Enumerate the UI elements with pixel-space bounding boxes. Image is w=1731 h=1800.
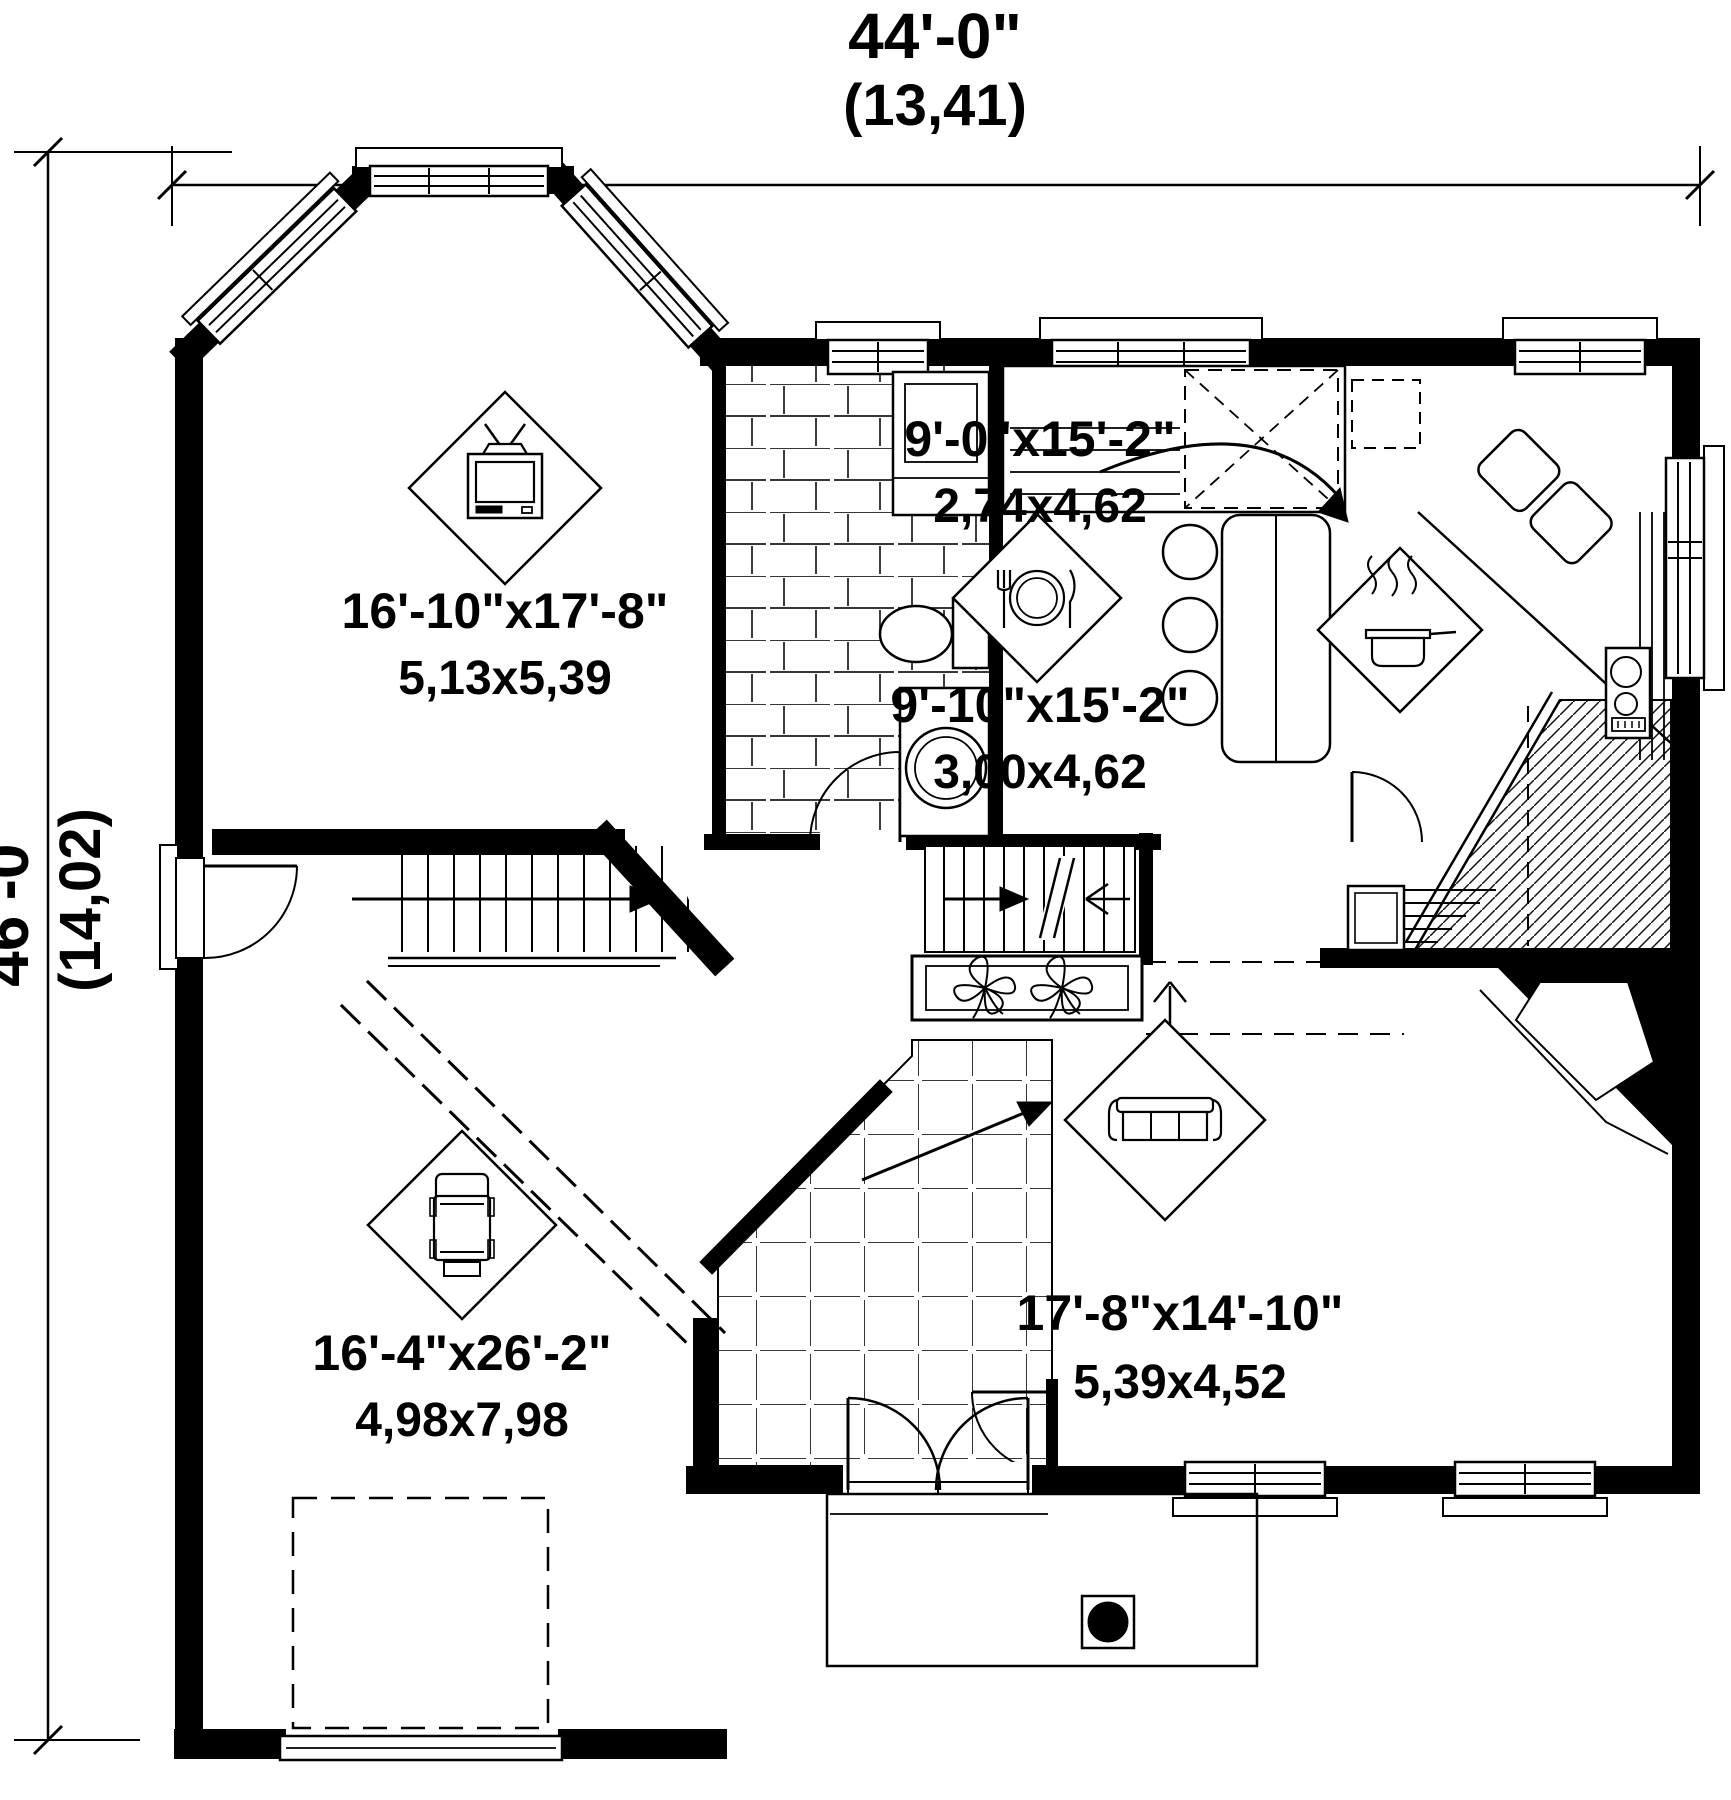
living-dims-imperial: 17'-8"x14'-10": [1017, 1285, 1344, 1341]
family-room-dims-imperial: 16'-10"x17'-8": [342, 583, 669, 639]
corner-sink: [1474, 426, 1615, 567]
tv-icon: [409, 392, 601, 584]
rear-door-swing: [1352, 772, 1422, 842]
frame: [562, 185, 712, 348]
dishwasher-dashed: [1352, 380, 1420, 448]
garage-details: [293, 1498, 548, 1728]
sofa-icon: [1065, 1020, 1265, 1220]
front-door-threshold-l: [848, 1482, 938, 1494]
garage-dims-imperial: 16'-4"x26'-2": [312, 1325, 611, 1381]
family-room-dims-metric: 5,13x5,39: [398, 652, 612, 705]
front-door-threshold-r: [938, 1482, 1028, 1494]
stool-2: [1163, 598, 1217, 652]
porch: [827, 1494, 1257, 1666]
overall-width-imperial: 44'-0": [848, 0, 1022, 72]
right-wall-window: [1666, 458, 1704, 678]
side-door-swing: [205, 866, 297, 958]
overall-height-metric: (14,02): [48, 808, 113, 992]
bay-left-window: [182, 173, 362, 350]
bathroom-window-sill: [816, 322, 940, 340]
bay-right-window: [556, 169, 728, 353]
right-window-sill: [1704, 446, 1724, 690]
rear-closet: [1348, 886, 1404, 950]
kitchen-dims-imperial: 9'-0"x15'-2": [904, 411, 1175, 467]
living-dims-metric: 5,39x4,52: [1073, 1356, 1287, 1409]
bay-top-window: [370, 166, 548, 196]
overall-height-imperial: 46'-0": [0, 813, 42, 987]
porch-slab: [827, 1494, 1257, 1666]
living-window1-sill: [1173, 1498, 1337, 1516]
overall-width-metric: (13,41): [843, 73, 1027, 138]
garage-dims-metric: 4,98x7,98: [355, 1394, 569, 1447]
car-icon: [368, 1131, 556, 1319]
bathroom-door-opening: [820, 832, 906, 852]
stairs-basement: [925, 846, 1135, 952]
living-window2-sill: [1443, 1498, 1607, 1516]
garage-angled-dashed-wall-a: [342, 1006, 700, 1356]
floor-plan-page: 44'-0" (13,41) 46'-0" (14,02): [0, 0, 1731, 1800]
dining-dims-imperial: 9'-10"x15'-2": [890, 677, 1189, 733]
porch-column: [1088, 1602, 1128, 1642]
kitchen-dims-metric: 2,74x4,62: [933, 480, 1147, 533]
side-door-opening: [176, 858, 204, 958]
frame: [198, 188, 357, 343]
kitchen-window1-sill: [1040, 318, 1262, 340]
dining-dims-metric: 3,00x4,62: [933, 746, 1147, 799]
toilet-bowl: [880, 606, 952, 662]
floor-plan-drawing: 44'-0" (13,41) 46'-0" (14,02): [0, 0, 1731, 1800]
stool-1: [1163, 525, 1217, 579]
corner-fireplace: [1480, 966, 1673, 1154]
cooking-pot-icon: [1318, 548, 1482, 712]
kitchen-window2-sill: [1503, 318, 1657, 340]
garage-ceiling-dashed: [293, 1498, 548, 1728]
